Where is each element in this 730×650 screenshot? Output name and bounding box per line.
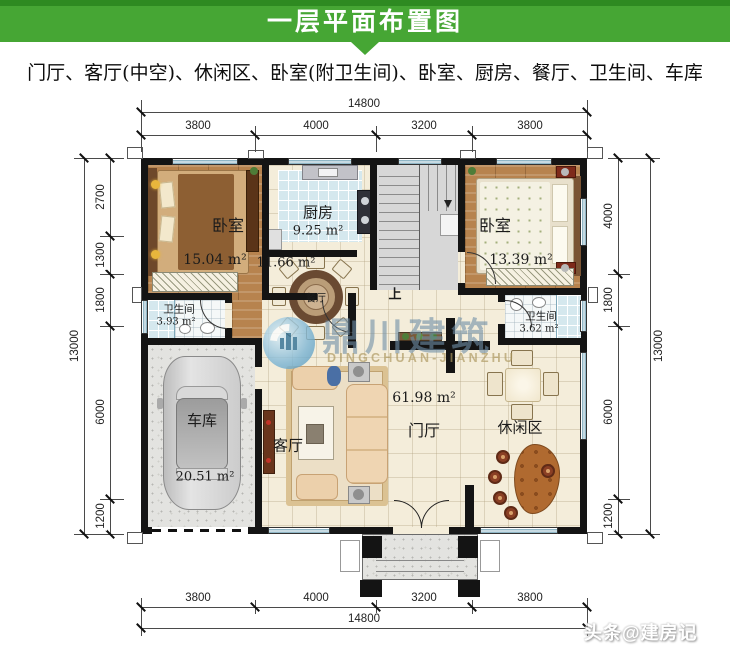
dim-ext-line — [141, 100, 142, 152]
room-label-garage: 车库 — [187, 410, 217, 431]
wall-pilaster — [460, 150, 476, 159]
leisure-chair — [487, 372, 503, 396]
dim-seg: 6000 — [603, 397, 615, 427]
wall — [370, 165, 377, 290]
wall-pilaster — [248, 150, 264, 159]
logo-bar — [280, 338, 284, 349]
wall — [498, 338, 587, 345]
porch-side-step — [480, 540, 500, 572]
wardrobe — [246, 170, 259, 252]
lamp-icon — [561, 168, 569, 176]
dim-total-bottom: 14800 — [346, 613, 382, 625]
burner-icon — [361, 216, 369, 224]
area-label-bedroom-left: 15.04 m² — [183, 252, 246, 268]
sofa-main — [346, 384, 388, 484]
tea-stool — [496, 450, 510, 464]
armchair — [296, 474, 338, 500]
side-table-decor — [353, 489, 364, 500]
dim-seg: 3800 — [515, 592, 545, 604]
room-label-bedroom-right: 卧室 — [479, 212, 511, 236]
wall — [465, 288, 587, 295]
area-label-bedroom-right: 13.39 m² — [489, 252, 552, 268]
dim-total-right: 13000 — [653, 328, 665, 364]
window — [398, 158, 442, 165]
dim-ext-line — [74, 534, 124, 535]
dim-ext-line — [255, 126, 256, 152]
wall — [148, 293, 225, 300]
page-title: 一层平面布置图 — [0, 0, 730, 44]
leisure-table — [505, 368, 541, 402]
window — [580, 352, 587, 440]
tea-stool — [493, 491, 507, 505]
closet-hatch — [486, 268, 574, 286]
logo-bar — [293, 337, 297, 350]
window — [141, 300, 148, 334]
stair-up-label: 上 — [388, 284, 401, 303]
dim-ext-line — [376, 126, 377, 152]
plant-icon — [468, 167, 476, 175]
tea-stool — [541, 464, 555, 478]
stair-direction-arrow — [444, 200, 452, 208]
dim-seg: 4000 — [603, 201, 615, 231]
dim-line — [84, 158, 85, 534]
area-label-dining: 11.66 m² — [257, 256, 316, 271]
pillow — [552, 184, 568, 222]
watermark-en: DINGCHUAN-JIANZHU — [327, 351, 516, 365]
dim-seg: 1800 — [95, 285, 107, 315]
dim-line — [141, 607, 587, 608]
dim-total-left: 13000 — [69, 328, 81, 364]
dingchuan-logo-icon — [263, 317, 315, 369]
logo-bar — [286, 333, 291, 350]
lamp-icon — [561, 264, 569, 272]
corner-pilaster — [127, 532, 143, 544]
stair-flight-down — [379, 176, 419, 290]
wall-pilaster — [588, 287, 598, 303]
dim-line — [141, 628, 587, 629]
dim-line — [141, 135, 587, 136]
stair-rail — [419, 165, 420, 290]
tea-stool — [488, 470, 502, 484]
car-mirror — [157, 398, 163, 409]
closet-hatch — [152, 272, 238, 292]
dressing-nook-floor — [232, 300, 262, 338]
wall — [255, 389, 262, 534]
plant-icon — [250, 167, 258, 175]
area-label-bath-right: 3.62 m² — [520, 324, 559, 335]
dim-line — [650, 158, 651, 534]
room-label-bath-right: 卫生间 — [525, 309, 557, 324]
porch-column-base — [360, 580, 382, 597]
window — [580, 300, 587, 332]
dim-total-top: 14800 — [346, 98, 382, 110]
entrance-opening — [393, 527, 449, 534]
wall — [458, 165, 465, 252]
dim-seg: 2700 — [95, 182, 107, 212]
dim-seg: 1300 — [95, 240, 107, 270]
wall — [458, 283, 465, 295]
porch-step-line — [376, 560, 464, 561]
window — [288, 158, 352, 165]
banner-pointer-triangle — [351, 42, 379, 55]
dim-seg: 1200 — [95, 501, 107, 531]
wall — [255, 338, 262, 367]
dining-room-label: 餐厅 — [306, 290, 326, 305]
room-label-leisure: 休闲区 — [497, 417, 542, 438]
window — [268, 527, 330, 534]
tea-stool — [504, 506, 518, 520]
dim-seg: 1200 — [603, 501, 615, 531]
dim-seg: 6000 — [95, 397, 107, 427]
porch-column — [458, 536, 478, 558]
wall — [262, 165, 269, 300]
dim-seg: 3800 — [515, 120, 545, 132]
porch-side-step — [340, 540, 360, 572]
toilet-icon — [532, 297, 546, 308]
area-label-hall: 61.98 m² — [392, 390, 455, 406]
header-banner: 一层平面布置图 — [0, 0, 730, 42]
wall — [148, 338, 262, 345]
room-label-bedroom-left: 卧室 — [212, 212, 244, 236]
area-label-garage: 20.51 m² — [176, 470, 235, 485]
wall — [465, 485, 474, 534]
tv-decor — [266, 458, 271, 463]
pillow — [552, 226, 568, 264]
dim-seg: 4000 — [301, 120, 331, 132]
floorplan-page: { "header": { "title": "一层平面布置图" }, "sub… — [0, 0, 730, 650]
porch-column — [362, 536, 382, 558]
window — [496, 158, 552, 165]
area-label-bath-left: 3.93 m² — [157, 317, 196, 328]
stair-flight-upper — [419, 165, 458, 211]
room-label-kitchen: 厨房 — [303, 202, 333, 223]
pillow — [159, 215, 176, 242]
lamp-icon — [151, 250, 160, 259]
shower-area — [556, 295, 581, 338]
dim-line — [110, 158, 111, 534]
dim-seg: 3200 — [409, 592, 439, 604]
dim-line — [618, 158, 619, 534]
corner-pilaster — [587, 147, 603, 159]
lamp-icon — [151, 180, 160, 189]
porch-column-base — [458, 580, 480, 597]
window — [480, 527, 558, 534]
dim-seg: 3800 — [183, 120, 213, 132]
room-label-living: 客厅 — [273, 435, 303, 456]
dim-ext-line — [472, 126, 473, 152]
dim-seg: 4000 — [301, 592, 331, 604]
wall — [498, 288, 505, 302]
person-figure — [327, 366, 341, 386]
corner-pilaster — [587, 532, 603, 544]
burner-icon — [361, 197, 369, 205]
dim-seg: 1800 — [603, 285, 615, 315]
room-label-hall: 门厅 — [408, 417, 440, 441]
room-list-subtitle: 门厅、客厅(中空)、休闲区、卧室(附卫生间)、卧室、厨房、餐厅、卫生间、车库 — [0, 58, 730, 85]
tv-decor — [266, 420, 271, 425]
area-label-kitchen: 9.25 m² — [293, 224, 344, 239]
dim-seg: 3800 — [183, 592, 213, 604]
pillow — [159, 181, 176, 208]
porch-step-line — [376, 571, 464, 572]
stair-closet — [440, 214, 460, 236]
dim-line — [141, 112, 587, 113]
kitchen-sink — [318, 168, 338, 177]
leisure-chair — [543, 372, 559, 396]
room-label-bath-left: 卫生间 — [163, 302, 195, 317]
credit-badge: 头条@建房记 — [584, 619, 698, 645]
garage-door-dashed — [152, 529, 248, 532]
dim-ext-line — [74, 158, 124, 159]
dim-ext-line — [587, 100, 588, 152]
table-decor — [306, 424, 324, 444]
window — [580, 198, 587, 246]
dim-seg: 3200 — [409, 120, 439, 132]
window — [172, 158, 238, 165]
side-table-decor — [353, 366, 364, 377]
car-mirror — [241, 398, 247, 409]
